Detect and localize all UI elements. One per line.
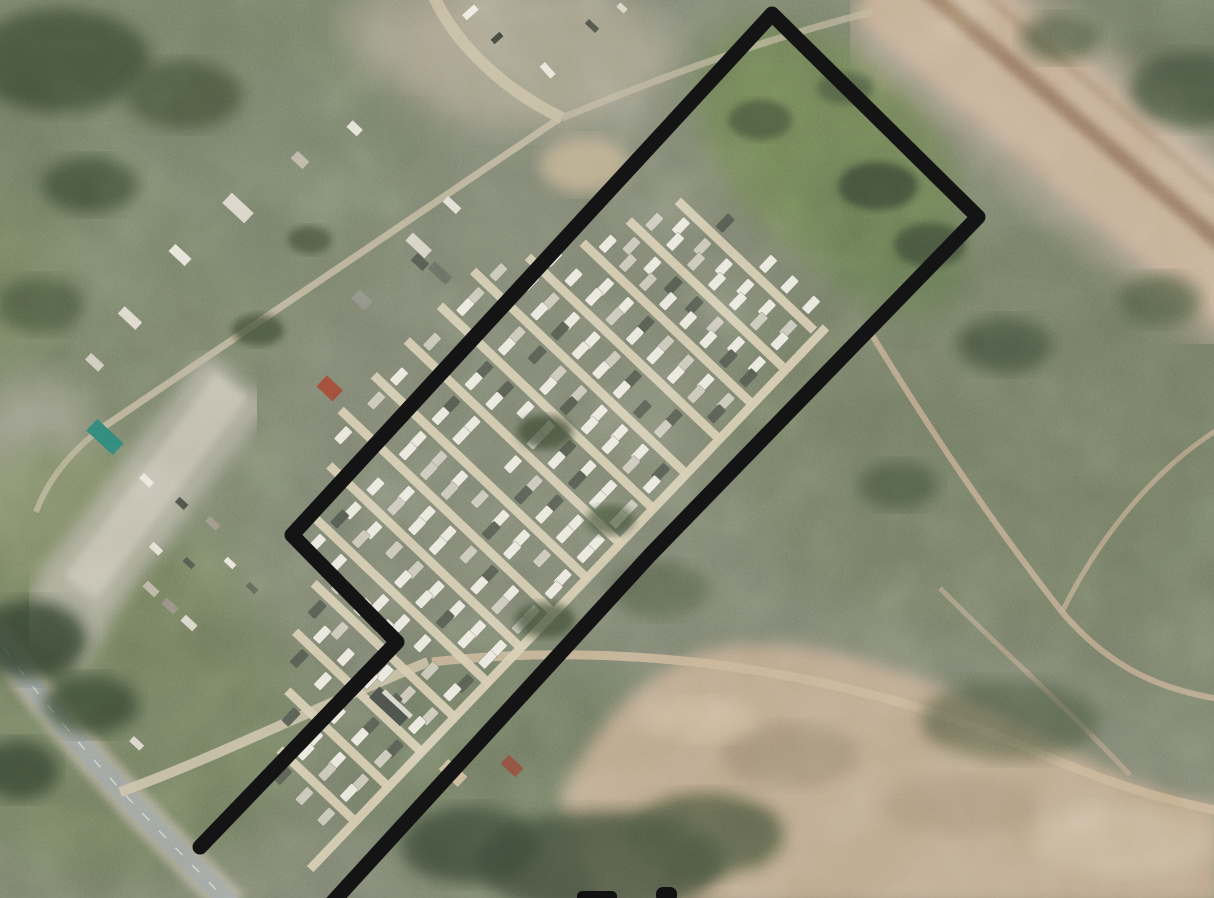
aerial-photo (0, 0, 1214, 898)
fine-grain-overlay (0, 0, 1214, 898)
caption-letter-top (577, 891, 617, 898)
aerial-photo-canvas (0, 0, 1214, 898)
caption-letter-top (656, 887, 677, 898)
